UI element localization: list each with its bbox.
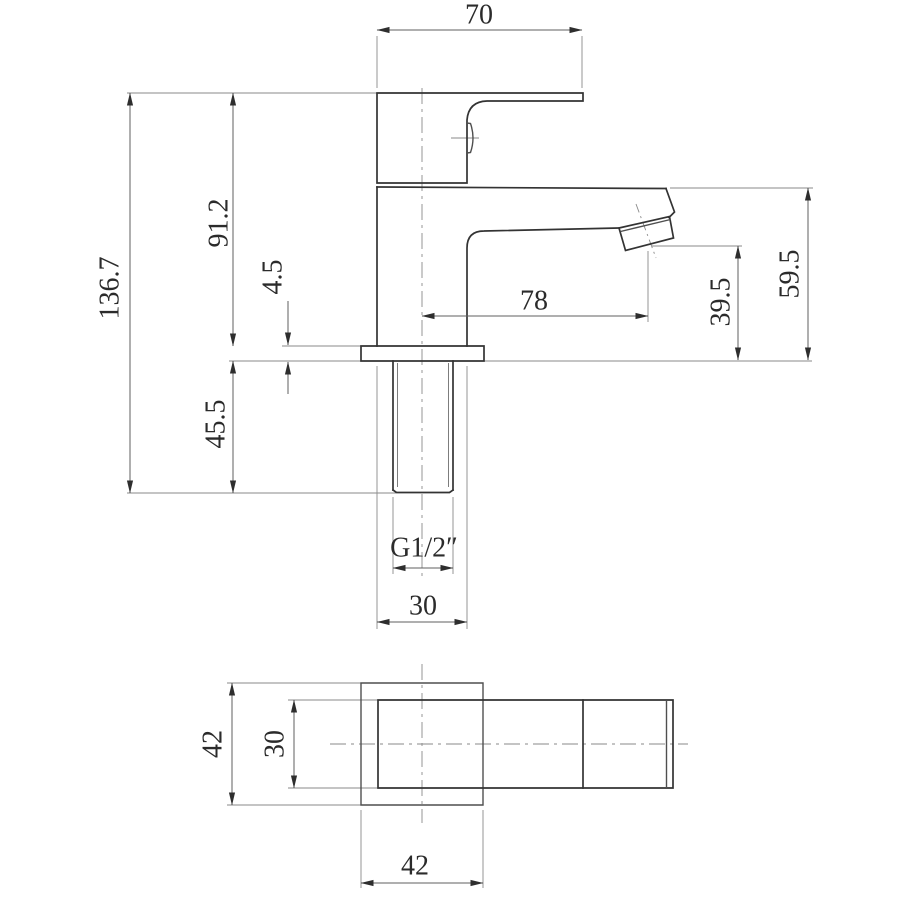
dim-30-label: 30 bbox=[409, 591, 437, 622]
plan-dim-42b-label: 42 bbox=[401, 851, 429, 882]
plan-extension-lines bbox=[227, 683, 483, 888]
dim-70-label: 70 bbox=[465, 0, 493, 31]
dim-59-label: 59.5 bbox=[775, 250, 806, 299]
plan-dim-42-label: 42 bbox=[198, 730, 229, 758]
dim-91-label: 91.2 bbox=[204, 199, 235, 248]
dim-4-5-label: 4.5 bbox=[258, 260, 289, 295]
dim-45-label: 45.5 bbox=[201, 400, 232, 449]
aerator-outline bbox=[619, 217, 674, 251]
plan-dimension-lines bbox=[232, 683, 483, 883]
plan-view: 42 30 42 bbox=[198, 664, 689, 888]
dim-thread-label: G1/2″ bbox=[390, 533, 458, 564]
aerator-centerline bbox=[636, 204, 656, 258]
base-plate bbox=[361, 346, 484, 361]
dim-78-label: 78 bbox=[520, 286, 548, 317]
dim-136-label: 136.7 bbox=[95, 257, 126, 320]
dim-39-label: 39.5 bbox=[706, 278, 737, 327]
plan-dim-30-label: 30 bbox=[260, 730, 291, 758]
handle-lever-outline bbox=[377, 93, 583, 183]
spout-end-cap bbox=[666, 189, 675, 218]
shank-bottom-chamfer bbox=[393, 490, 453, 493]
tap-outline bbox=[361, 93, 675, 493]
side-elevation-view: 70 136.7 91.2 4.5 45.5 78 39.5 59.5 G1/2… bbox=[95, 0, 814, 629]
extension-lines bbox=[127, 36, 813, 629]
technical-drawing: 70 136.7 91.2 4.5 45.5 78 39.5 59.5 G1/2… bbox=[0, 0, 900, 900]
body-top-line bbox=[377, 187, 666, 189]
